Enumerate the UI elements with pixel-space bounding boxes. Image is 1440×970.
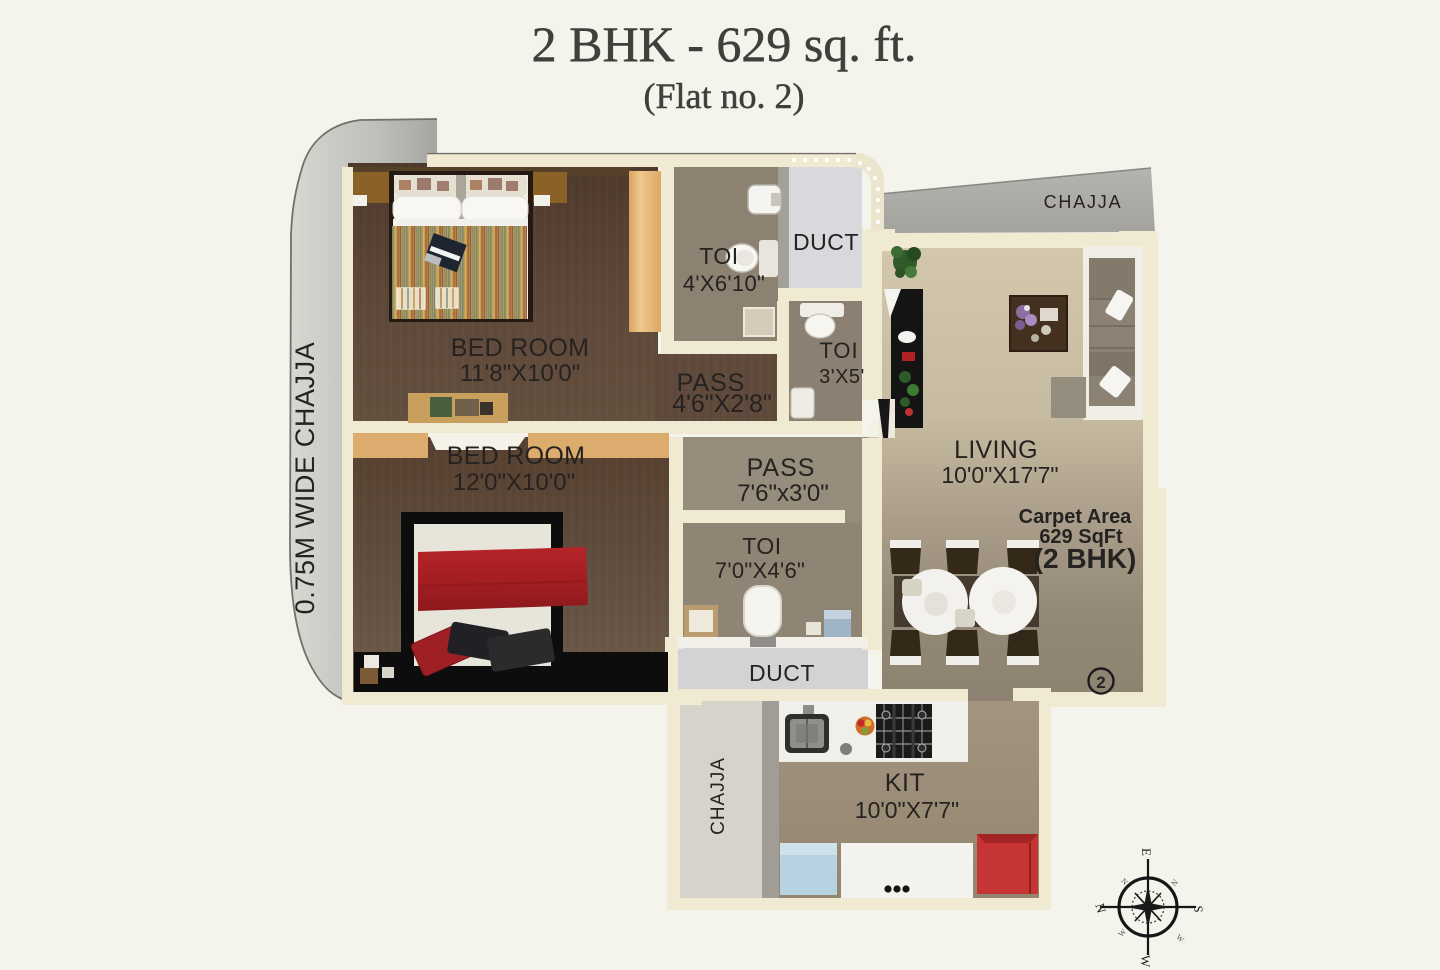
svg-text:10'0"X17'7": 10'0"X17'7" — [941, 462, 1058, 488]
svg-text:(2 BHK): (2 BHK) — [1034, 543, 1137, 574]
svg-text:TOI: TOI — [819, 338, 858, 363]
svg-text:CHAJJA: CHAJJA — [708, 757, 729, 835]
svg-text:7'6"x3'0": 7'6"x3'0" — [737, 480, 829, 507]
svg-text:3'X5': 3'X5' — [819, 366, 865, 388]
svg-text:10'0"X7'7": 10'0"X7'7" — [855, 797, 959, 823]
svg-text:4'6"X2'8": 4'6"X2'8" — [672, 390, 772, 418]
svg-text:TOI: TOI — [742, 533, 781, 559]
svg-text:KIT: KIT — [885, 769, 925, 797]
svg-text:DUCT: DUCT — [793, 229, 859, 255]
svg-text:BED ROOM: BED ROOM — [451, 334, 590, 362]
svg-text:12'0"X10'0": 12'0"X10'0" — [453, 469, 575, 496]
svg-text:LIVING: LIVING — [954, 436, 1038, 464]
svg-text:PASS: PASS — [747, 454, 816, 482]
svg-text:(Flat no. 2): (Flat no. 2) — [644, 76, 805, 116]
svg-text:TOI: TOI — [699, 243, 738, 269]
svg-text:2 BHK - 629 sq. ft.: 2 BHK - 629 sq. ft. — [532, 16, 917, 72]
svg-text:4'X6'10": 4'X6'10" — [683, 271, 765, 296]
svg-text:CHAJJA: CHAJJA — [1044, 192, 1123, 212]
svg-text:W: W — [1138, 955, 1153, 968]
svg-text:E: E — [1139, 848, 1154, 856]
svg-text:7'0"X4'6": 7'0"X4'6" — [715, 558, 805, 583]
svg-text:BED ROOM: BED ROOM — [447, 442, 586, 470]
svg-text:11'8"X10'0": 11'8"X10'0" — [460, 360, 581, 387]
svg-text:Carpet Area: Carpet Area — [1019, 506, 1133, 528]
svg-text:DUCT: DUCT — [749, 660, 815, 686]
svg-text:S: S — [1191, 905, 1206, 912]
svg-text:2: 2 — [1096, 673, 1105, 692]
svg-text:0.75M WIDE CHAJJA: 0.75M WIDE CHAJJA — [290, 342, 320, 615]
